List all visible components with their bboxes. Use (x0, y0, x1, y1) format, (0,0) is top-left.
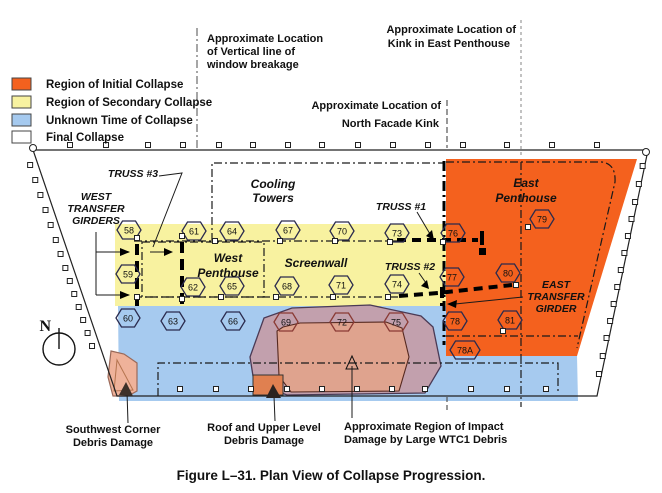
splice-square (135, 236, 140, 241)
splice-square (331, 295, 336, 300)
perimeter-square (214, 387, 219, 392)
splice-square (180, 234, 185, 239)
column-number: 75 (391, 318, 401, 328)
perimeter-square (461, 143, 466, 148)
legend-label-final: Final Collapse (46, 132, 124, 144)
splice-square (278, 239, 283, 244)
truss1-label: TRUSS #1 (376, 201, 426, 213)
perimeter-square (285, 387, 290, 392)
perimeter-square (595, 143, 600, 148)
perimeter-square (625, 234, 630, 239)
east-penthouse-label-2: Penthouse (495, 191, 557, 205)
east-girder-label-3: GIRDER (536, 303, 577, 315)
perimeter-square (640, 164, 645, 169)
truss3-label: TRUSS #3 (108, 168, 158, 180)
perimeter-square (58, 252, 63, 257)
perimeter-square (611, 302, 616, 307)
column-number: 80 (503, 269, 513, 279)
perimeter-square (90, 344, 95, 349)
column-number: 72 (337, 318, 347, 328)
perimeter-square (544, 387, 549, 392)
perimeter-square (636, 182, 641, 187)
north-compass: N (39, 318, 75, 365)
legend-label-secondary: Region of Secondary Collapse (46, 97, 212, 109)
perimeter-square (181, 143, 186, 148)
perimeter-square (604, 336, 609, 341)
legend: Region of Initial Collapse Region of Sec… (12, 78, 212, 144)
column-number: 69 (281, 318, 291, 328)
roof-damage-label-1: Roof and Upper Level (207, 422, 321, 434)
perimeter-square (608, 319, 613, 324)
perimeter-square (67, 279, 72, 284)
column-number: 59 (123, 270, 133, 280)
perimeter-square (43, 208, 48, 213)
impact-damage-label-1: Approximate Region of Impact (344, 421, 504, 433)
perimeter-square (426, 143, 431, 148)
perimeter-square (76, 305, 81, 310)
column-number: 79 (537, 215, 547, 225)
perimeter-square (286, 143, 291, 148)
perimeter-square (633, 200, 638, 205)
splice-square (274, 295, 279, 300)
column-number: 74 (392, 280, 402, 290)
column-number: 78A (457, 346, 473, 356)
window-breakage-label-2: of Vertical line of (207, 46, 295, 58)
perimeter-square (38, 193, 43, 198)
column-number: 61 (189, 227, 199, 237)
perimeter-square (600, 354, 605, 359)
column-number: 76 (448, 229, 458, 239)
northeast-corner-marker (643, 149, 650, 156)
column-number: 58 (124, 226, 134, 236)
perimeter-square (72, 292, 77, 297)
plan-diagram: 5861646770737679596265687174778060636669… (0, 0, 662, 493)
east-kink-label-2: Kink in East Penthouse (388, 38, 510, 50)
perimeter-square (390, 387, 395, 392)
figure-l31-plan-view: 5861646770737679596265687174778060636669… (0, 0, 662, 493)
southwest-damage-label-1: Southwest Corner (66, 424, 161, 436)
perimeter-square (505, 143, 510, 148)
perimeter-square (28, 163, 33, 168)
perimeter-square (249, 387, 254, 392)
perimeter-square (629, 217, 634, 222)
perimeter-square (615, 285, 620, 290)
perimeter-square (505, 387, 510, 392)
truss2-label: TRUSS #2 (385, 261, 435, 273)
perimeter-square (81, 318, 86, 323)
figure-caption: Figure L–31. Plan View of Collapse Progr… (177, 468, 486, 483)
perimeter-square (355, 387, 360, 392)
perimeter-square (622, 251, 627, 256)
damage-labels: Southwest Corner Debris Damage Roof and … (66, 421, 508, 449)
truss1-end-square (479, 248, 486, 255)
legend-swatch-initial (12, 78, 31, 90)
facade-kink-label-1: Approximate Location of (311, 100, 441, 112)
northwest-corner-marker (30, 145, 37, 152)
splice-square (135, 295, 140, 300)
legend-swatch-secondary (12, 96, 31, 108)
legend-swatch-unknown (12, 114, 31, 126)
perimeter-square (356, 143, 361, 148)
column-number: 63 (168, 317, 178, 327)
compass-label: N (39, 318, 51, 335)
legend-label-unknown: Unknown Time of Collapse (46, 115, 193, 127)
column-number: 65 (227, 282, 237, 292)
column-number: 70 (337, 227, 347, 237)
facade-kink-label-2: North Facade Kink (342, 118, 440, 130)
perimeter-square (53, 238, 58, 243)
perimeter-square (251, 143, 256, 148)
column-number: 77 (447, 273, 457, 283)
perimeter-square (469, 387, 474, 392)
column-number: 64 (227, 227, 237, 237)
cooling-towers-label-2: Towers (252, 191, 294, 205)
perimeter-square (618, 268, 623, 273)
splice-square (441, 240, 446, 245)
perimeter-square (550, 143, 555, 148)
perimeter-square (85, 331, 90, 336)
column-number: 73 (392, 229, 402, 239)
roof-damage-impact-rect (253, 375, 283, 395)
window-breakage-label-1: Approximate Location (207, 33, 323, 45)
perimeter-square (217, 143, 222, 148)
perimeter-square (146, 143, 151, 148)
screenwall-label: Screenwall (285, 256, 348, 270)
splice-square (333, 239, 338, 244)
column-number: 67 (283, 226, 293, 236)
cooling-towers-label-1: Cooling (251, 177, 296, 191)
splice-square (514, 283, 519, 288)
splice-square (501, 329, 506, 334)
perimeter-square (320, 387, 325, 392)
perimeter-square (48, 223, 53, 228)
legend-label-initial: Region of Initial Collapse (46, 79, 183, 91)
east-girder-label-1: EAST (542, 279, 572, 291)
legend-swatch-final (12, 131, 31, 143)
column-number: 62 (188, 283, 198, 293)
column-number: 81 (505, 316, 515, 326)
roof-damage-inner-shape (277, 322, 409, 392)
annotation-texts: Approximate Location of Vertical line of… (206, 24, 516, 130)
perimeter-square (320, 143, 325, 148)
perimeter-square (391, 143, 396, 148)
roof-damage-label-2: Debris Damage (224, 435, 304, 447)
east-kink-label-1: Approximate Location of (386, 24, 516, 36)
window-breakage-label-3: window breakage (206, 59, 299, 71)
column-number: 71 (336, 281, 346, 291)
west-girders-label-1: WEST (81, 191, 113, 203)
column-number: 68 (282, 282, 292, 292)
perimeter-square (33, 178, 38, 183)
column-number: 78 (450, 317, 460, 327)
splice-square (386, 295, 391, 300)
east-penthouse-label-1: East (513, 176, 539, 190)
column-number: 66 (228, 317, 238, 327)
perimeter-square (63, 266, 68, 271)
splice-square (526, 225, 531, 230)
perimeter-square (596, 372, 601, 377)
splice-square (213, 239, 218, 244)
splice-square (388, 240, 393, 245)
impact-damage-label-2: Damage by Large WTC1 Debris (344, 434, 507, 446)
splice-square (219, 295, 224, 300)
perimeter-square (423, 387, 428, 392)
west-penthouse-label-2: Penthouse (197, 266, 259, 280)
initial-collapse-region (446, 159, 637, 356)
column-number: 60 (123, 314, 133, 324)
splice-square (180, 297, 185, 302)
southwest-damage-label-2: Debris Damage (73, 437, 153, 449)
east-girder-label-2: TRANSFER (527, 291, 585, 303)
west-girders-label-3: GIRDERS (72, 215, 120, 227)
west-penthouse-label-1: West (214, 251, 243, 265)
west-girders-label-2: TRANSFER (67, 203, 125, 215)
perimeter-square (178, 387, 183, 392)
